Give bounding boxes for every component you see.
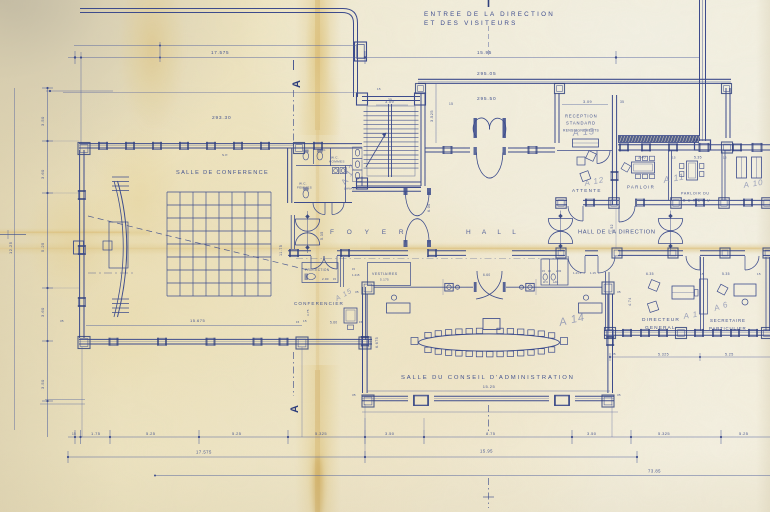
svg-text:15: 15 <box>757 272 761 276</box>
svg-text:A: A <box>291 80 303 88</box>
svg-text:HALL DE LA DIRECTION: HALL DE LA DIRECTION <box>578 230 656 236</box>
svg-text:HOMMES: HOMMES <box>329 160 345 164</box>
svg-text:15: 15 <box>542 270 545 273</box>
svg-text:5.25: 5.25 <box>40 242 45 252</box>
svg-text:STANDARD: STANDARD <box>566 121 596 126</box>
svg-text:1.75: 1.75 <box>91 431 101 436</box>
svg-text:ATTENTE: ATTENTE <box>572 188 602 193</box>
svg-text:295.05: 295.05 <box>477 71 496 77</box>
svg-text:SALLE DU CONSEIL D'ADMINISTRAT: SALLE DU CONSEIL D'ADMINISTRATION <box>401 375 575 381</box>
svg-text:35: 35 <box>620 100 624 104</box>
svg-text:8.75: 8.75 <box>486 431 496 436</box>
svg-text:11.75: 11.75 <box>279 245 283 256</box>
svg-text:6.00: 6.00 <box>427 203 431 212</box>
svg-text:12.25: 12.25 <box>8 241 13 254</box>
svg-text:1.52: 1.52 <box>610 224 614 232</box>
svg-text:HALL: HALL <box>466 229 527 236</box>
svg-text:15.95: 15.95 <box>480 449 493 454</box>
svg-text:3.525: 3.525 <box>430 110 434 122</box>
svg-text:5.25: 5.25 <box>739 431 749 436</box>
svg-text:15: 15 <box>672 156 676 160</box>
svg-text:6.35: 6.35 <box>646 272 654 276</box>
svg-text:DIRECTEUR: DIRECTEUR <box>642 317 680 323</box>
svg-text:35: 35 <box>355 290 359 294</box>
svg-text:PROTECTION: PROTECTION <box>305 268 330 272</box>
svg-text:3.60: 3.60 <box>40 169 45 179</box>
svg-text:FEMMES: FEMMES <box>297 186 312 190</box>
svg-text:S.P.: S.P. <box>222 153 228 157</box>
svg-text:3.60: 3.60 <box>40 307 45 317</box>
svg-text:VESTIAIRES: VESTIAIRES <box>372 272 398 276</box>
svg-text:15.675: 15.675 <box>190 318 206 323</box>
svg-text:5.325: 5.325 <box>315 431 327 436</box>
svg-text:17.575: 17.575 <box>196 450 212 455</box>
svg-text:PARLOIR: PARLOIR <box>627 185 655 190</box>
svg-text:RECEPTION: RECEPTION <box>565 114 598 119</box>
svg-text:5.175: 5.175 <box>380 278 389 282</box>
svg-text:15: 15 <box>352 267 356 271</box>
svg-text:35: 35 <box>617 393 621 397</box>
svg-text:INC.: INC. <box>320 148 326 152</box>
svg-text:LAV.: LAV. <box>553 280 559 284</box>
svg-text:2.80: 2.80 <box>556 270 562 273</box>
svg-text:15: 15 <box>333 277 337 281</box>
svg-text:5.25: 5.25 <box>146 431 156 436</box>
svg-text:SECRETAIRE: SECRETAIRE <box>710 318 746 323</box>
svg-text:15: 15 <box>72 432 76 436</box>
svg-text:35: 35 <box>352 393 356 397</box>
svg-text:2.00: 2.00 <box>322 277 329 281</box>
svg-text:3.75: 3.75 <box>306 309 310 316</box>
svg-text:3.50: 3.50 <box>40 379 45 389</box>
svg-text:6.60: 6.60 <box>483 273 490 277</box>
svg-text:5.325: 5.325 <box>658 353 669 357</box>
svg-text:15.95: 15.95 <box>477 50 492 55</box>
svg-text:ET DES VISITEURS: ET DES VISITEURS <box>424 20 518 27</box>
svg-text:5.25: 5.25 <box>232 431 242 436</box>
svg-text:1.415: 1.415 <box>352 273 360 277</box>
svg-text:5.35: 5.35 <box>722 272 730 276</box>
svg-text:15: 15 <box>303 319 307 323</box>
svg-text:15: 15 <box>296 320 300 324</box>
svg-text:1.15: 1.15 <box>590 271 596 275</box>
svg-text:SALLE DE CONFERENCE: SALLE DE CONFERENCE <box>176 170 269 176</box>
svg-text:5.35: 5.35 <box>694 156 702 160</box>
svg-text:ENTREE DE LA DIRECTION: ENTREE DE LA DIRECTION <box>424 11 555 18</box>
svg-text:5.60: 5.60 <box>330 321 337 325</box>
svg-text:5.325: 5.325 <box>658 431 670 436</box>
svg-text:4.74: 4.74 <box>628 297 632 306</box>
svg-text:6.675: 6.675 <box>375 337 379 348</box>
svg-text:A: A <box>289 405 301 413</box>
svg-text:5.35: 5.35 <box>320 231 324 240</box>
svg-text:3.50: 3.50 <box>385 431 395 436</box>
svg-text:35: 35 <box>612 352 616 356</box>
svg-text:FOYER: FOYER <box>330 229 416 236</box>
svg-text:15: 15 <box>449 102 453 106</box>
svg-text:15: 15 <box>377 87 381 91</box>
svg-text:15.25: 15.25 <box>483 384 496 389</box>
svg-text:W.C: W.C <box>543 280 548 284</box>
svg-text:5.25: 5.25 <box>725 353 734 357</box>
svg-text:73.85: 73.85 <box>648 469 661 474</box>
svg-text:A 13: A 13 <box>571 126 595 138</box>
svg-text:17.575: 17.575 <box>211 50 229 55</box>
svg-text:3.50: 3.50 <box>587 431 597 436</box>
svg-text:295.50: 295.50 <box>477 96 496 102</box>
svg-text:293.30: 293.30 <box>212 115 231 121</box>
svg-text:35: 35 <box>617 290 621 294</box>
svg-text:1.41.5: 1.41.5 <box>573 271 582 275</box>
svg-text:3.09: 3.09 <box>583 100 592 104</box>
svg-text:3.50: 3.50 <box>40 116 45 126</box>
svg-text:35: 35 <box>388 98 392 102</box>
svg-text:40: 40 <box>548 270 551 273</box>
svg-text:PARLOIR DU: PARLOIR DU <box>681 192 710 196</box>
svg-text:35: 35 <box>60 319 64 323</box>
